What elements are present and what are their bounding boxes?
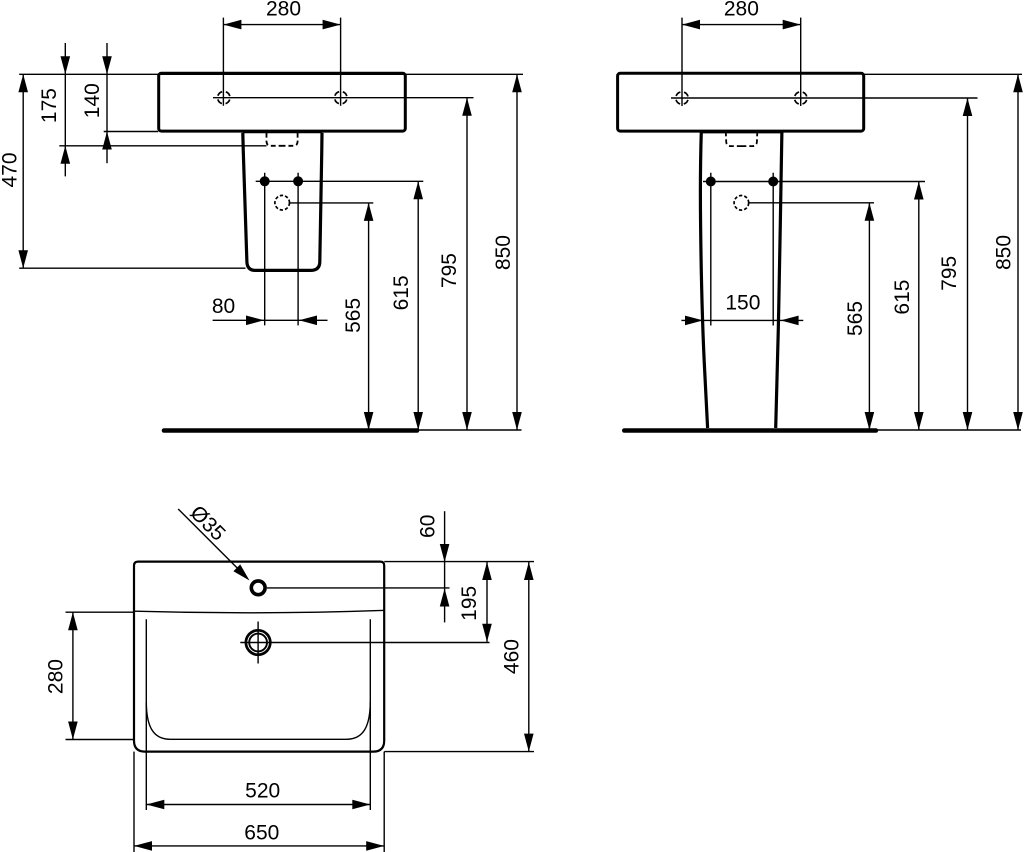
- svg-text:795: 795: [938, 256, 961, 291]
- svg-text:280: 280: [724, 0, 759, 21]
- svg-text:470: 470: [0, 152, 21, 187]
- svg-text:140: 140: [81, 83, 104, 118]
- svg-text:850: 850: [993, 235, 1016, 270]
- svg-text:460: 460: [500, 639, 523, 674]
- svg-text:615: 615: [891, 280, 914, 315]
- svg-text:565: 565: [342, 298, 365, 333]
- svg-text:175: 175: [38, 88, 61, 123]
- svg-text:150: 150: [725, 292, 760, 315]
- svg-text:565: 565: [844, 301, 867, 336]
- svg-text:280: 280: [266, 0, 301, 21]
- svg-text:850: 850: [492, 235, 515, 270]
- svg-text:520: 520: [245, 780, 280, 803]
- svg-text:60: 60: [417, 515, 440, 538]
- svg-text:795: 795: [438, 253, 461, 288]
- svg-text:615: 615: [390, 275, 413, 310]
- svg-text:195: 195: [458, 586, 481, 621]
- svg-text:80: 80: [212, 295, 235, 318]
- svg-text:650: 650: [244, 822, 279, 845]
- svg-text:280: 280: [45, 659, 68, 694]
